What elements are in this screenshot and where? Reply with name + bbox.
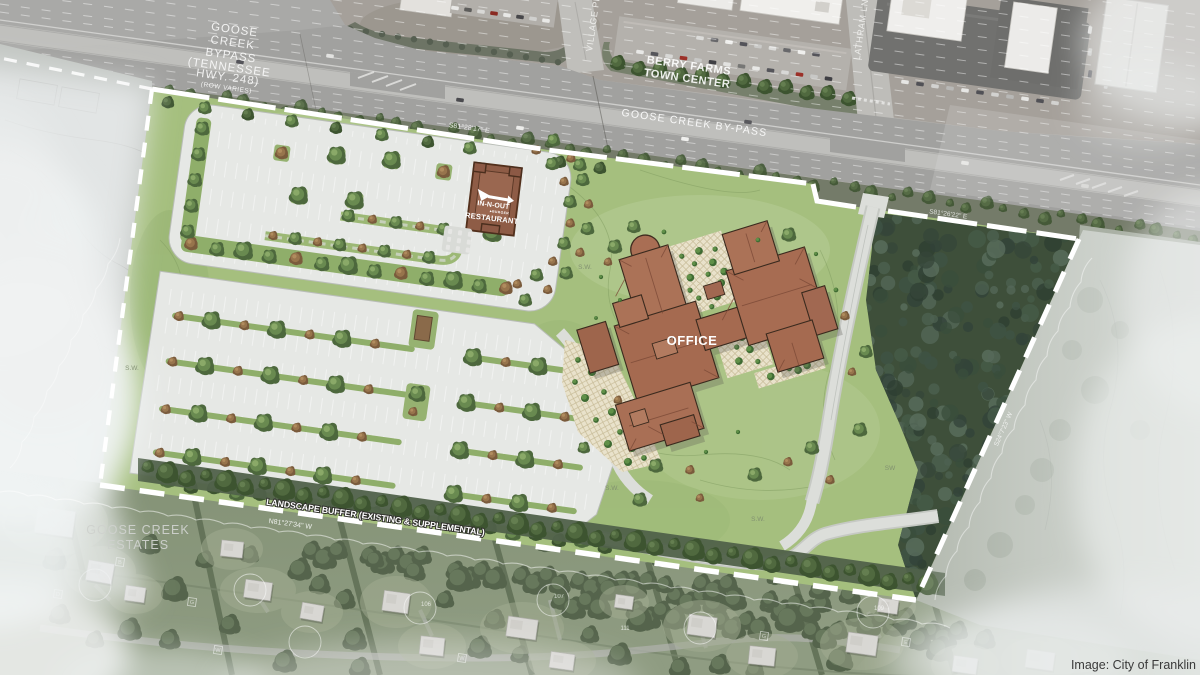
svg-text:S.W.: S.W. — [751, 516, 765, 523]
svg-text:G: G — [762, 634, 766, 640]
svg-text:ESTATES: ESTATES — [107, 538, 169, 552]
svg-text:S.W.: S.W. — [578, 264, 592, 271]
svg-text:Image: City of Franklin: Image: City of Franklin — [1071, 658, 1196, 672]
svg-text:107: 107 — [554, 594, 565, 600]
svg-text:106: 106 — [421, 602, 432, 608]
svg-text:109: 109 — [874, 606, 885, 612]
svg-text:SW: SW — [885, 465, 896, 472]
svg-text:OFFICE: OFFICE — [667, 333, 718, 348]
svg-text:G: G — [190, 600, 194, 606]
svg-text:111: 111 — [620, 626, 630, 632]
svg-text:GOOSE CREEK: GOOSE CREEK — [86, 523, 189, 537]
svg-text:S.W.: S.W. — [605, 485, 619, 492]
svg-text:S.W.: S.W. — [125, 365, 139, 372]
